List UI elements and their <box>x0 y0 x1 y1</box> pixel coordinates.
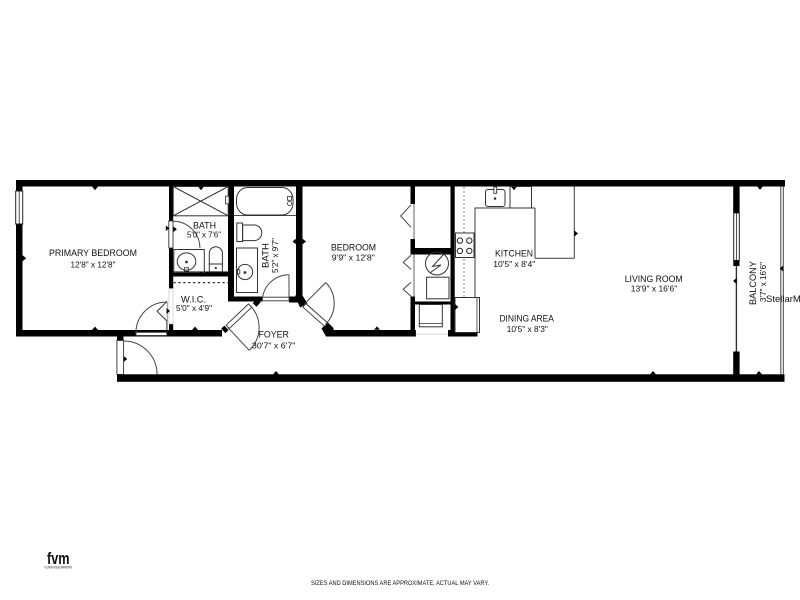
svg-text:12'8" x 12'8": 12'8" x 12'8" <box>71 259 116 269</box>
svg-text:5'0" x 7'6": 5'0" x 7'6" <box>187 230 221 240</box>
svg-text:10'5" x 8'4": 10'5" x 8'4" <box>493 259 535 269</box>
svg-text:LIVING ROOM: LIVING ROOM <box>625 274 683 284</box>
svg-text:5'0" x 4'9": 5'0" x 4'9" <box>176 303 212 313</box>
svg-text:BEDROOM: BEDROOM <box>331 242 376 252</box>
svg-text:5'2" x 9'7": 5'2" x 9'7" <box>270 238 280 273</box>
svg-text:BATH: BATH <box>261 243 271 268</box>
svg-text:FOYER: FOYER <box>258 330 289 340</box>
svg-text:DINING AREA: DINING AREA <box>499 314 554 324</box>
svg-text:SIZES AND DIMENSIONS ARE APPRO: SIZES AND DIMENSIONS ARE APPROXIMATE, AC… <box>311 580 489 587</box>
svg-text:9'9" x 12'8": 9'9" x 12'8" <box>332 253 375 263</box>
svg-text:BALCONY: BALCONY <box>748 261 758 305</box>
svg-text:13'9" x 16'6": 13'9" x 16'6" <box>631 284 678 294</box>
svg-text:10'5" x 8'3": 10'5" x 8'3" <box>507 324 548 334</box>
svg-text:PRIMARY BEDROOM: PRIMARY BEDROOM <box>49 248 137 258</box>
svg-text:FLORIDA VISUAL MARKETING: FLORIDA VISUAL MARKETING <box>45 566 73 570</box>
svg-text:KITCHEN: KITCHEN <box>495 249 533 259</box>
svg-text:StellarMLS: StellarMLS <box>766 294 800 305</box>
svg-text:30'7" x 6'7": 30'7" x 6'7" <box>252 340 296 350</box>
